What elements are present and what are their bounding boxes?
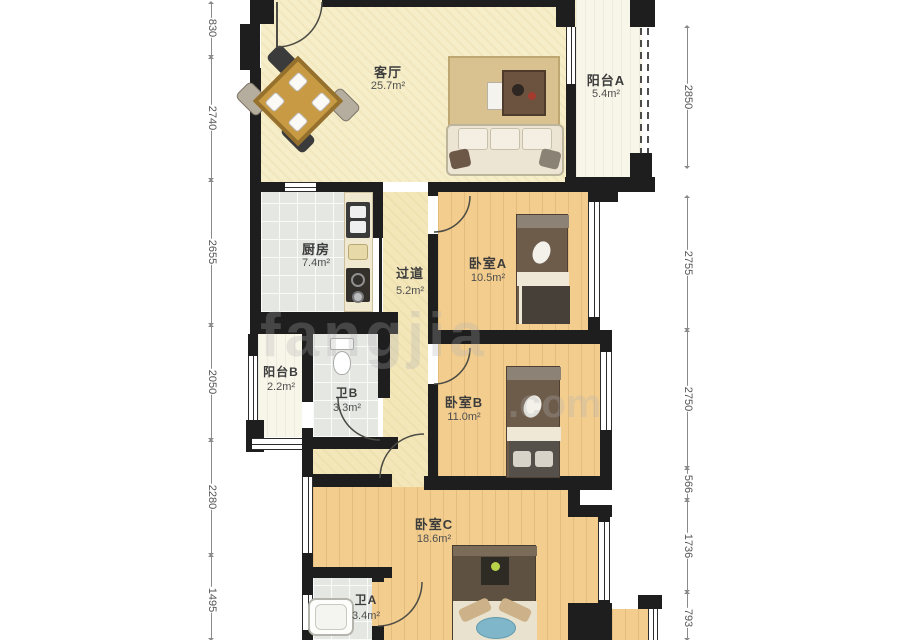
dim-value: 1495 — [203, 587, 221, 613]
wall — [302, 437, 398, 449]
bath-a-area: 3.4m² — [336, 610, 396, 622]
bed-b-emblem — [520, 393, 544, 421]
sofa-cushion — [522, 128, 552, 150]
dim-value: 2740 — [203, 105, 221, 131]
dim-value: 2850 — [679, 84, 697, 110]
bed-b-pillow — [535, 451, 553, 467]
bay-window — [648, 609, 658, 640]
dim-value: 2755 — [679, 250, 697, 276]
bed-c-accent-pillow — [476, 617, 516, 639]
kitchen-window — [285, 182, 316, 192]
living-room-label: 客厅 — [348, 62, 428, 81]
bedroom-a-label: 卧室A — [448, 253, 528, 272]
bay-floor-patch — [612, 609, 648, 640]
wall — [556, 0, 575, 27]
dim-value: 2280 — [203, 484, 221, 510]
kitchen-label: 厨房 — [286, 239, 346, 258]
bed-c-headband — [453, 546, 537, 556]
bedroom-a-window — [588, 202, 600, 317]
bed-a-headboard — [517, 215, 569, 228]
dim-value: 2655 — [203, 239, 221, 265]
kettle — [352, 291, 364, 303]
wall — [322, 0, 558, 7]
bed-c-lamp — [491, 562, 500, 571]
bedroom-c-right-window — [598, 522, 610, 600]
bedroom-b-window — [600, 352, 612, 430]
hallway-floor-south — [313, 449, 383, 474]
dim-value: 2050 — [203, 369, 221, 395]
dim-value: 566 — [679, 474, 697, 494]
balcony-b-label: 阳台B — [250, 363, 312, 380]
bedroom-b-label: 卧室B — [424, 392, 504, 411]
kitchen-sliding-partition — [379, 238, 382, 312]
dim-value: 1736 — [679, 533, 697, 559]
balcony-a-area: 5.4m² — [574, 88, 638, 100]
dim-value: 793 — [679, 608, 697, 628]
bed-a-duvet — [519, 286, 570, 324]
dim-value: 2750 — [679, 386, 697, 412]
balcony-b-area: 2.2m² — [250, 381, 312, 393]
magazine — [487, 82, 503, 110]
wall — [250, 312, 398, 334]
wall — [250, 182, 383, 192]
bedroom-c-left-window — [302, 477, 313, 553]
wall — [428, 330, 612, 344]
wall — [248, 334, 258, 356]
bed-c — [452, 545, 536, 640]
wall — [428, 192, 438, 196]
bed-b-headboard — [507, 367, 561, 380]
cutting-board — [348, 244, 368, 260]
wall — [372, 578, 384, 582]
balcony-b-sill-window — [252, 438, 306, 450]
wall — [600, 344, 612, 352]
bedroom-b-area: 11.0m² — [424, 411, 504, 423]
sink-basin — [350, 221, 366, 233]
kitchen-area: 7.4m² — [286, 257, 346, 269]
burner — [351, 273, 365, 287]
table-decor — [512, 84, 524, 96]
bed-b — [506, 366, 560, 478]
sofa-cushion — [490, 128, 520, 150]
bath-b-area: 3.3m² — [317, 402, 377, 414]
bed-b-sheet — [507, 427, 561, 441]
bath-b-label: 卫B — [317, 384, 377, 401]
wall — [373, 192, 383, 238]
wall — [424, 476, 612, 490]
bed-b-pillow — [513, 451, 531, 467]
bedroom-c-label: 卧室C — [394, 514, 474, 533]
wall — [250, 0, 274, 24]
sofa-cushion — [458, 128, 488, 150]
bed-a-emblem — [529, 239, 553, 267]
bedroom-c-area: 18.6m² — [394, 533, 474, 545]
balcony-a-label: 阳台A — [574, 70, 638, 89]
hallway-label: 过道 — [384, 263, 436, 282]
wall — [638, 595, 662, 609]
wall — [313, 474, 392, 487]
sink-basin — [350, 206, 366, 218]
bath-a-label: 卫A — [336, 591, 396, 608]
dim-value: 830 — [203, 18, 221, 38]
wall — [568, 505, 612, 517]
wall — [428, 182, 600, 192]
wall — [372, 626, 384, 640]
table-decor — [528, 92, 536, 100]
floorplan-canvas: fangjia .com 客厅 25.7m² 阳台A 5.4m² 厨房 7.4m… — [0, 0, 900, 640]
wall — [302, 567, 392, 578]
wall — [588, 192, 600, 202]
coffee-table — [502, 70, 546, 116]
notch-mask — [580, 490, 612, 505]
wall — [302, 449, 313, 477]
hallway-area: 5.2m² — [384, 285, 436, 297]
wall — [630, 0, 655, 27]
bedroom-a-area: 10.5m² — [448, 272, 528, 284]
toilet-tank — [330, 338, 354, 350]
living-room-area: 25.7m² — [348, 80, 428, 92]
toilet-bowl — [333, 351, 351, 375]
wall — [378, 334, 390, 398]
wall — [568, 603, 612, 640]
wall — [240, 24, 260, 70]
